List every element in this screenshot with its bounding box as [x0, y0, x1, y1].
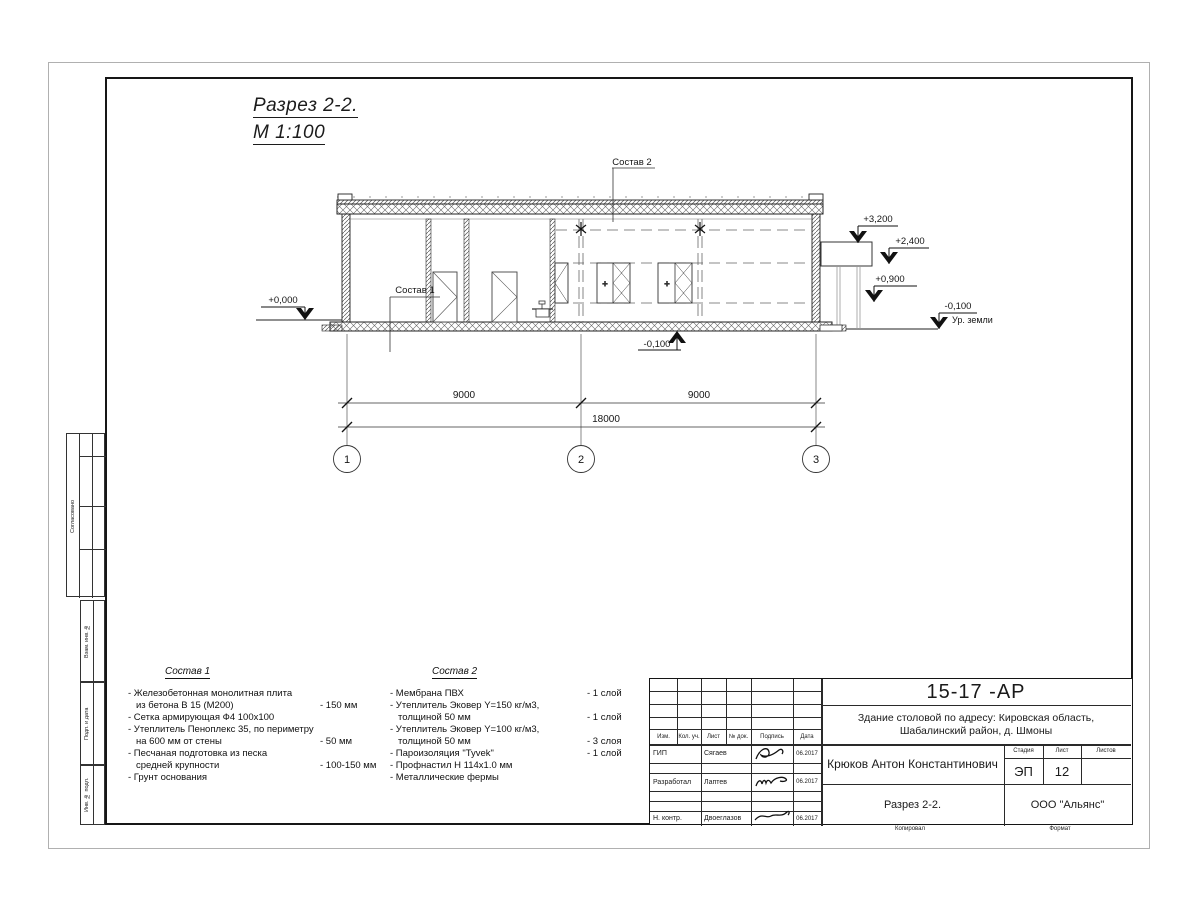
- tb-project-name: Здание столовой по адресу: Кировская обл…: [821, 705, 1131, 744]
- list-item: толщиной 50 мм- 3 слоя: [390, 736, 635, 748]
- dim-label-right: 9000: [688, 390, 711, 401]
- axis-label-3: 3: [813, 454, 819, 466]
- door-2: [492, 272, 517, 322]
- elevation-label-2400: +2,400: [895, 236, 924, 247]
- list-item: толщиной 50 мм- 1 слой: [390, 712, 635, 724]
- list-item: из бетона В 15 (М200)- 150 мм: [128, 700, 383, 712]
- ground-level-label: Ур. земли: [952, 315, 993, 325]
- axis-label-1: 1: [344, 454, 350, 466]
- sostav2-header: Состав 2: [432, 666, 477, 679]
- tb-name: Лаптев: [701, 773, 751, 791]
- elevation-label-floor-bottom: -0,100: [644, 339, 671, 350]
- sostav1-leader-label: Состав 1: [395, 285, 434, 296]
- tb-doc-number: 15-17 -АР: [821, 679, 1131, 705]
- axis-label-2: 2: [578, 454, 584, 466]
- tb-project-line1: Здание столовой по адресу: Кировская обл…: [858, 712, 1094, 725]
- tb-col-izm: Изм.: [650, 729, 677, 744]
- window-plus-mark: +: [664, 279, 669, 289]
- sostav1-list: Состав 1 - Железобетонная монолитная пли…: [128, 666, 383, 784]
- tb-footer-format: Формат: [1020, 826, 1100, 832]
- signature-nkontr: [751, 808, 793, 826]
- tb-project-line2: Шабалинский район, д. Шмоны: [858, 725, 1094, 738]
- signature-razrabotal: [751, 773, 793, 791]
- canopy: [820, 242, 872, 331]
- list-item: - Мембрана ПВХ- 1 слой: [390, 688, 635, 700]
- tb-name: Сягаев: [701, 744, 751, 763]
- tb-company: ООО "Альянс": [1004, 784, 1131, 826]
- window-plus-mark: +: [602, 279, 607, 289]
- tb-name: Двоеглазов: [701, 811, 751, 826]
- list-item: - Железобетонная монолитная плита: [128, 688, 383, 700]
- tb-sheet-title: Разрез 2-2.: [821, 784, 1004, 826]
- elevation-mark-floor-bottom: -0,100: [638, 331, 686, 350]
- tb-role: ГИП: [650, 744, 701, 763]
- elevation-label-ground-value: -0,100: [945, 301, 972, 312]
- tb-stage-value: ЭП: [1004, 758, 1043, 784]
- dim-label-total: 18000: [592, 414, 620, 425]
- tb-stage-label: Стадия: [1004, 744, 1043, 758]
- tb-date: 06.2017: [793, 744, 821, 763]
- sostav1-leader: Состав 1: [390, 285, 440, 352]
- dimension-lines: 9000 9000 18000: [338, 334, 825, 445]
- dim-label-left: 9000: [453, 390, 476, 401]
- elevation-mark-0900: +0,900: [865, 274, 917, 302]
- list-item: - Утеплитель Эковер Y=100 кг/м3,: [390, 724, 635, 736]
- list-item: - Песчаная подготовка из песка: [128, 748, 383, 760]
- sostav2-leader-label: Состав 2: [612, 157, 651, 168]
- list-item: на 600 мм от стены- 50 мм: [128, 736, 383, 748]
- tb-footer-kopiroval: Копировал: [860, 826, 960, 832]
- list-item: - Грунт основания: [128, 772, 383, 784]
- axis-bubbles: 1 2 3: [334, 446, 830, 473]
- signature-gip: [751, 744, 793, 763]
- elevation-mark-ground: -0,100 Ур. земли: [930, 301, 993, 329]
- tb-sheets-value: [1081, 758, 1131, 784]
- elevation-label-zero: +0,000: [268, 295, 297, 306]
- tb-chief-name: Крюков Антон Константинович: [821, 744, 1004, 784]
- title-block: Изм. Кол. уч. Лист № док. Подпись Дата Г…: [649, 678, 1133, 825]
- list-item: - Утеплитель Эковер Y=150 кг/м3,: [390, 700, 635, 712]
- list-item: - Утеплитель Пеноплекс 35, по периметру: [128, 724, 383, 736]
- elevation-mark-3200: +3,200: [849, 214, 898, 243]
- tb-sheets-label: Листов: [1081, 744, 1131, 758]
- windows: + +: [555, 263, 692, 303]
- list-item: - Профнастил Н 114х1.0 мм: [390, 760, 635, 772]
- tb-col-list: Лист: [701, 729, 726, 744]
- elevation-label-3200: +3,200: [863, 214, 892, 225]
- tb-sheet-label: Лист: [1043, 744, 1081, 758]
- sostav1-header: Состав 1: [165, 666, 210, 679]
- sostav2-list: Состав 2 - Мембрана ПВХ- 1 слой - Утепли…: [390, 666, 635, 784]
- list-item: - Сетка армирующая Ф4 100х100: [128, 712, 383, 724]
- tb-col-kol: Кол. уч.: [677, 729, 701, 744]
- drawing-sheet: Согласовано Взам. инв. № Подп. и дата Ин…: [0, 0, 1200, 900]
- list-item: средней крупности- 100-150 мм: [128, 760, 383, 772]
- tb-date: 06.2017: [793, 773, 821, 791]
- tb-date: 06.2017: [793, 811, 821, 826]
- elevation-mark-zero: +0,000: [261, 295, 314, 320]
- tb-col-date: Дата: [793, 729, 821, 744]
- list-item: - Металлические фермы: [390, 772, 635, 784]
- elevation-label-0900: +0,900: [875, 274, 904, 285]
- tb-col-sign: Подпись: [751, 729, 793, 744]
- tb-sheet-value: 12: [1043, 758, 1081, 784]
- tb-col-doc: № док.: [726, 729, 751, 744]
- roof-slab: [337, 194, 823, 214]
- list-item: - Пароизоляция "Tyvek"- 1 слой: [390, 748, 635, 760]
- tb-role: Н. контр.: [650, 811, 701, 826]
- tb-role: Разработал: [650, 773, 701, 791]
- elevation-mark-2400: +2,400: [880, 236, 929, 264]
